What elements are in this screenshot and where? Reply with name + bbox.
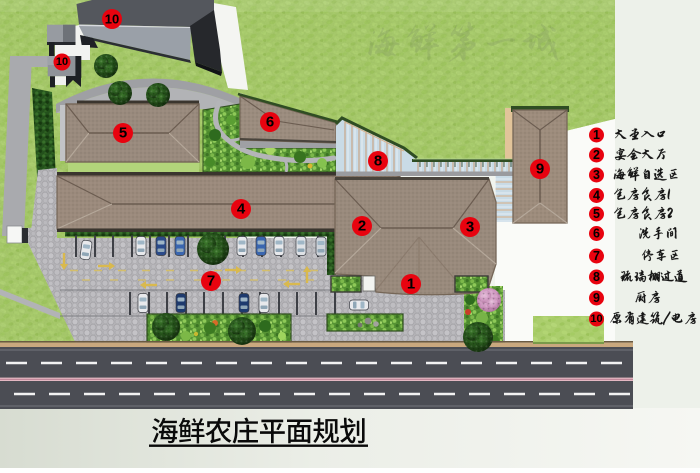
svg-text:7: 7 [593, 249, 600, 263]
svg-text:8: 8 [593, 270, 600, 284]
svg-text:6: 6 [593, 227, 600, 241]
svg-text:6: 6 [266, 114, 274, 131]
svg-text:10: 10 [105, 12, 119, 27]
svg-text:9: 9 [536, 161, 544, 178]
svg-text:4: 4 [593, 189, 600, 203]
svg-text:1: 1 [407, 276, 415, 293]
svg-text:5: 5 [119, 125, 127, 142]
svg-text:5: 5 [593, 207, 600, 221]
svg-text:2: 2 [593, 148, 600, 162]
svg-text:8: 8 [374, 153, 382, 170]
svg-text:7: 7 [207, 273, 215, 290]
svg-text:3: 3 [466, 219, 474, 236]
svg-text:3: 3 [593, 168, 600, 182]
svg-text:1: 1 [593, 128, 600, 142]
svg-text:10: 10 [590, 313, 602, 325]
svg-text:4: 4 [237, 201, 246, 218]
svg-text:10: 10 [56, 56, 68, 68]
svg-text:2: 2 [358, 218, 366, 235]
svg-text:9: 9 [593, 291, 600, 305]
